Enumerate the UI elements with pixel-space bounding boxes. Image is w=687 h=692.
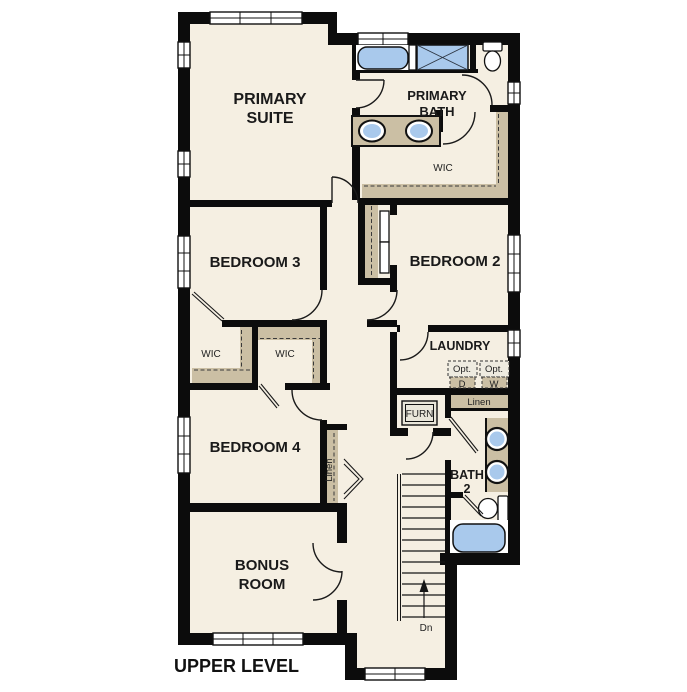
- bonus-room-label: BONUS: [235, 557, 289, 574]
- bedroom4-linen-label: Linen: [324, 458, 335, 481]
- vanity-primary: [352, 116, 440, 146]
- window: [210, 12, 302, 24]
- stairs-dn-label: Dn: [420, 623, 433, 634]
- sink-icon: [359, 121, 385, 142]
- shower-primary: [417, 45, 468, 70]
- opt-washer-letter: W: [490, 379, 499, 390]
- toilet-primary: [483, 42, 502, 71]
- furnace-label: FURN: [406, 409, 434, 420]
- floor-plan-upper-level: PRIMARY SUITE PRIMARY BATH WIC BEDROOM 3…: [0, 0, 687, 687]
- primary-bath-label: PRIMARY: [407, 88, 467, 103]
- bedroom4-label: BEDROOM 4: [210, 439, 302, 456]
- opt-dryer-letter: D: [459, 379, 466, 390]
- sink-icon: [406, 121, 432, 142]
- sink-icon: [486, 461, 508, 483]
- window: [178, 151, 190, 177]
- opt-dryer-label: Opt.: [453, 364, 471, 375]
- window: [508, 82, 520, 104]
- window: [213, 633, 303, 645]
- wic4-label: WIC: [275, 349, 294, 360]
- closet-door-panel: [380, 211, 389, 242]
- window: [178, 42, 190, 68]
- hall-linen-label: Linen: [467, 397, 490, 408]
- window: [508, 330, 520, 357]
- opt-washer-label: Opt.: [485, 364, 503, 375]
- laundry-label: LAUNDRY: [430, 339, 491, 353]
- window: [178, 236, 190, 288]
- bathtub-bath2: [453, 524, 505, 552]
- sink-icon: [486, 428, 508, 450]
- window: [365, 668, 425, 680]
- window: [178, 417, 190, 473]
- bath2-label: BATH: [450, 468, 484, 482]
- vanity-bath2: [486, 418, 508, 492]
- window: [508, 235, 520, 292]
- closet-door-panel: [380, 242, 389, 273]
- primary-suite-label: PRIMARY: [233, 91, 307, 108]
- toilet-bath2: [479, 496, 509, 521]
- primary-bath-label: BATH: [419, 104, 454, 119]
- primary-suite-label: SUITE: [246, 110, 293, 127]
- bedroom2-label: BEDROOM 2: [410, 253, 501, 270]
- primary-wic-label: WIC: [433, 163, 452, 174]
- floor-plan-canvas: PRIMARY SUITE PRIMARY BATH WIC BEDROOM 3…: [0, 0, 687, 687]
- plan-title: UPPER LEVEL: [174, 656, 299, 676]
- bathtub-primary: [358, 47, 408, 69]
- bedroom3-label: BEDROOM 3: [210, 254, 301, 271]
- wic3-label: WIC: [201, 349, 220, 360]
- bonus-room-label: ROOM: [239, 576, 286, 593]
- bath2-label: 2: [464, 482, 471, 496]
- tub-shower-divider: [409, 45, 416, 70]
- window: [358, 33, 408, 45]
